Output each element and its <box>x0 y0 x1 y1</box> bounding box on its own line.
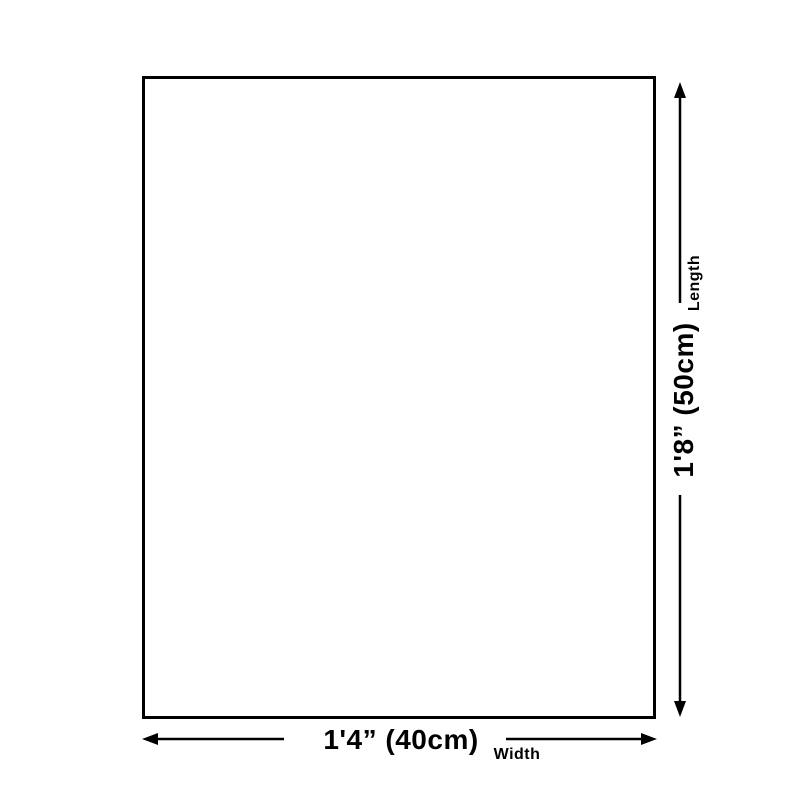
width-arrow-left-icon <box>142 733 284 745</box>
length-arrow-up-icon <box>674 82 686 303</box>
width-arrow-right-icon <box>506 733 657 745</box>
length-arrow-down-icon <box>674 495 686 717</box>
length-dimension-value: 1'8” (50cm) <box>668 322 700 477</box>
width-dimension-value: 1'4” (40cm) <box>323 724 478 756</box>
length-axis-label: Length <box>686 255 704 311</box>
width-axis-label: Width <box>494 746 541 764</box>
dimension-diagram: 1'8” (50cm) Length 1'4” (40cm) Width <box>0 0 800 800</box>
